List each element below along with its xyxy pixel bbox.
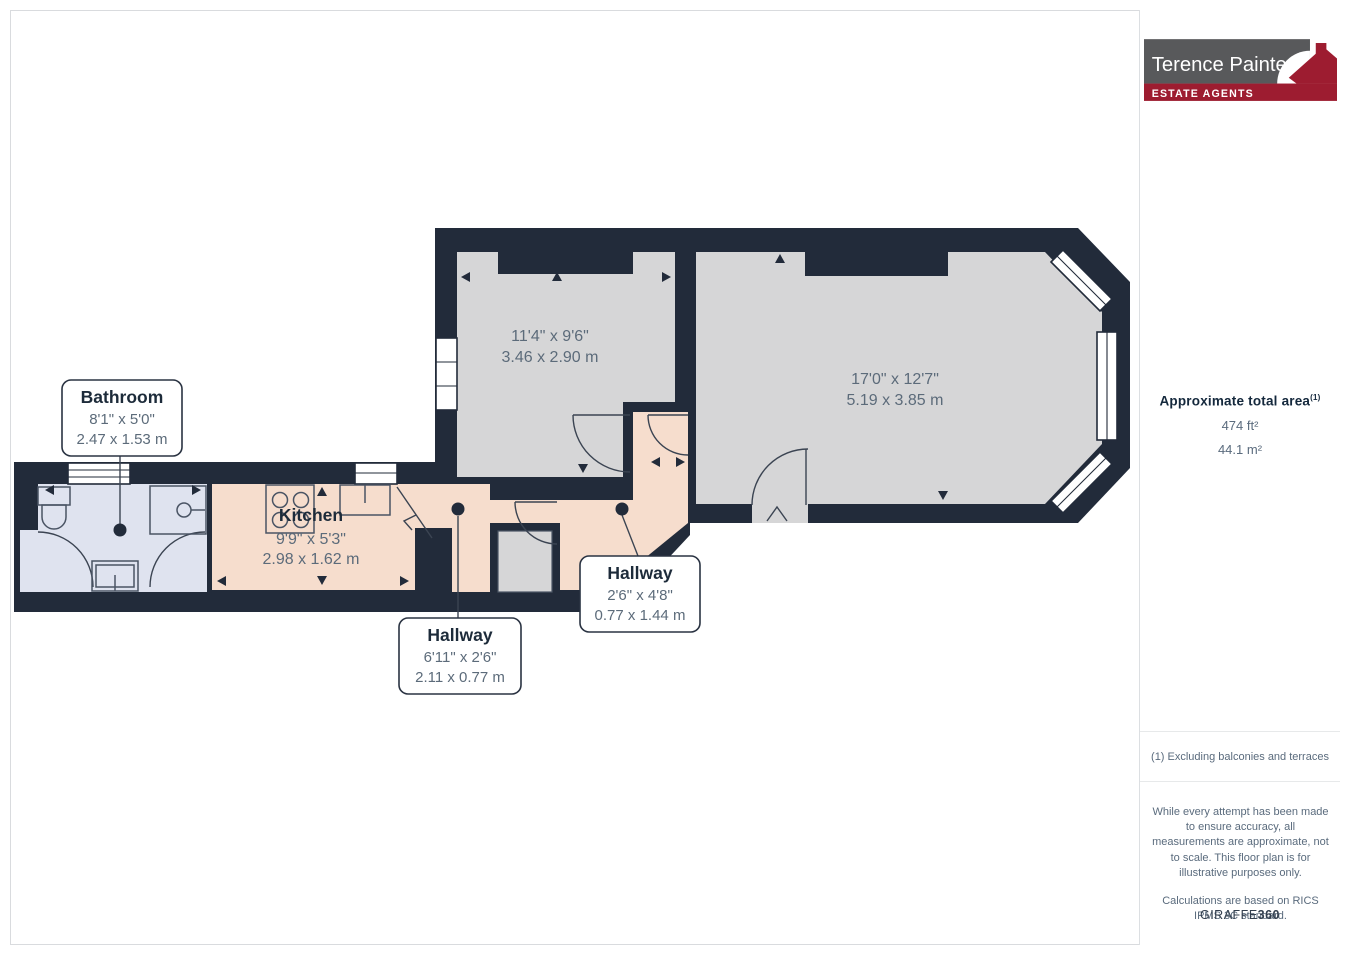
kitchen-label: Kitchen: [279, 505, 343, 525]
svg-text:0.77 x 1.44 m: 0.77 x 1.44 m: [595, 607, 686, 624]
cupboard-floor: [498, 531, 552, 592]
svg-text:Bathroom: Bathroom: [81, 387, 164, 407]
room1-dims-metric: 3.46 x 2.90 m: [502, 349, 599, 366]
floorplan-drawing: 11'4" x 9'6" 3.46 x 2.90 m 17'0" x 12'7"…: [10, 10, 1139, 945]
disclaimer-text: While every attempt has been made to ens…: [1150, 805, 1331, 924]
floorplan-page: 11'4" x 9'6" 3.46 x 2.90 m 17'0" x 12'7"…: [0, 0, 1350, 955]
area-metric: 44.1 m²: [1140, 442, 1340, 457]
svg-text:2.47 x 1.53 m: 2.47 x 1.53 m: [77, 431, 168, 448]
svg-text:Hallway: Hallway: [427, 625, 492, 645]
kitchen-dims-imperial: 9'9" x 5'3": [276, 531, 346, 548]
room2-dims-metric: 5.19 x 3.85 m: [847, 392, 944, 409]
info-sidebar: Terence Painter ESTATE AGENTS Approximat…: [1139, 10, 1340, 945]
svg-text:2.11 x 0.77 m: 2.11 x 0.77 m: [415, 669, 505, 686]
logo-name: Terence Painter: [1152, 54, 1294, 76]
room1-chimney-breast: [498, 252, 633, 274]
area-title: Approximate total area(1): [1140, 393, 1340, 409]
room2-chimney-breast: [805, 252, 948, 276]
area-footnote: (1) Excluding balconies and terraces: [1140, 731, 1340, 782]
svg-text:Hallway: Hallway: [607, 563, 672, 583]
room1-dims-imperial: 11'4" x 9'6": [511, 328, 589, 345]
svg-text:6'11" x 2'6": 6'11" x 2'6": [424, 649, 497, 666]
agency-logo: Terence Painter ESTATE AGENTS: [1144, 38, 1337, 104]
logo-tagline: ESTATE AGENTS: [1152, 88, 1254, 100]
kitchen-dims-metric: 2.98 x 1.62 m: [263, 551, 360, 568]
svg-text:8'1" x 5'0": 8'1" x 5'0": [89, 411, 155, 428]
room2-dims-imperial: 17'0" x 12'7": [851, 371, 939, 388]
total-area-block: Approximate total area(1) 474 ft² 44.1 m…: [1140, 393, 1340, 457]
giraffe360-brandmark: GIRAFFE360: [1140, 908, 1340, 922]
bathroom-left-wall: [14, 462, 38, 530]
area-imperial: 474 ft²: [1140, 418, 1340, 433]
svg-text:2'6" x 4'8": 2'6" x 4'8": [607, 587, 673, 604]
